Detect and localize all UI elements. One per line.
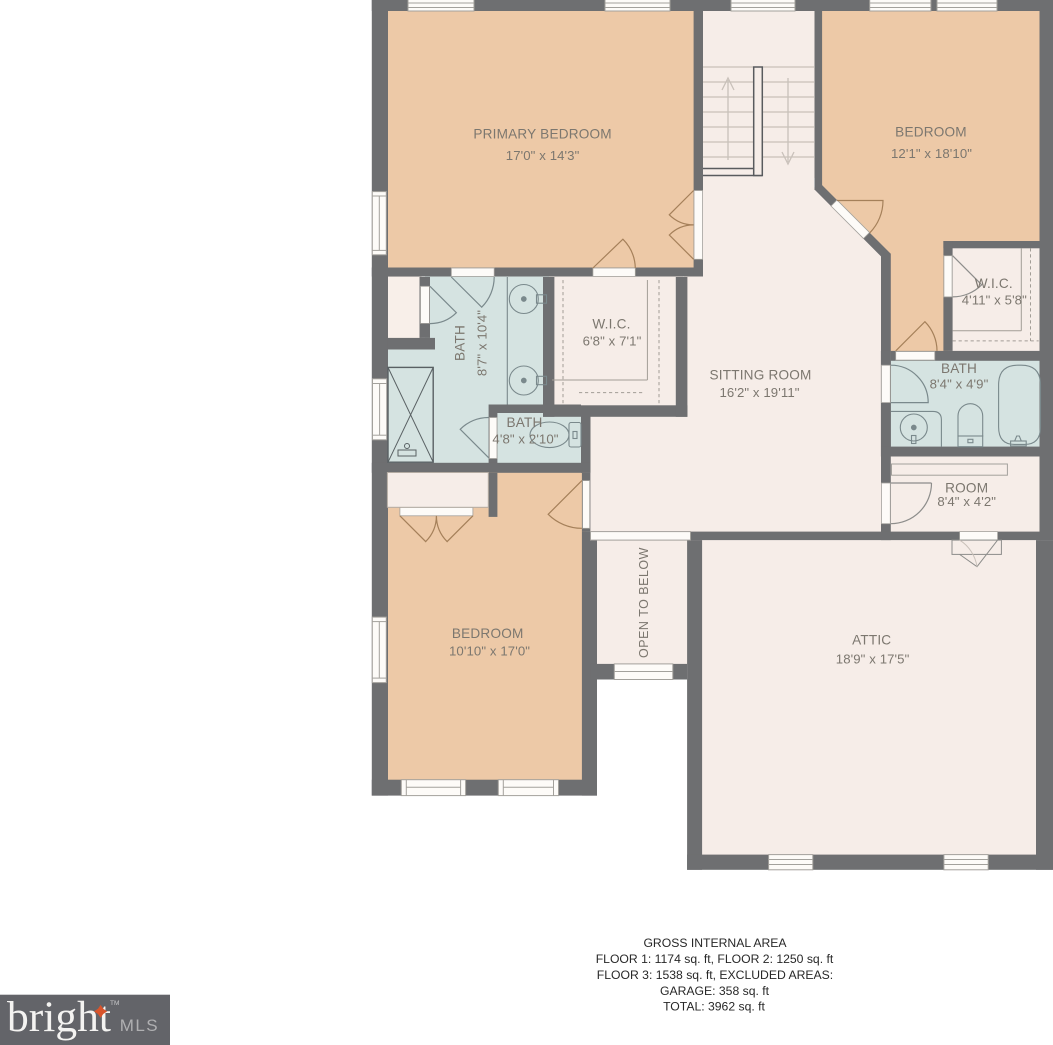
svg-text:SITTING ROOM: SITTING ROOM — [709, 368, 811, 383]
svg-text:OPEN TO BELOW: OPEN TO BELOW — [637, 547, 651, 658]
svg-text:GROSS INTERNAL AREA: GROSS INTERNAL AREA — [643, 936, 787, 950]
svg-text:BATH: BATH — [941, 361, 977, 376]
svg-text:GARAGE: 358 sq. ft: GARAGE: 358 sq. ft — [660, 984, 770, 998]
svg-text:W.I.C.: W.I.C. — [592, 317, 630, 332]
svg-text:18'9" x 17'5": 18'9" x 17'5" — [836, 652, 910, 667]
svg-text:ATTIC: ATTIC — [852, 633, 891, 648]
svg-text:BATH: BATH — [506, 415, 542, 430]
svg-text:12'1" x 18'10": 12'1" x 18'10" — [891, 146, 972, 161]
svg-text:MLS: MLS — [120, 1016, 159, 1035]
svg-text:6'8" x 7'1": 6'8" x 7'1" — [583, 334, 642, 349]
svg-text:TM: TM — [110, 1000, 119, 1007]
svg-text:10'10" x 17'0": 10'10" x 17'0" — [449, 644, 530, 659]
svg-text:8'4" x 4'9": 8'4" x 4'9" — [930, 377, 989, 392]
svg-text:4'11" x 5'8": 4'11" x 5'8" — [962, 293, 1027, 308]
svg-text:W.I.C.: W.I.C. — [975, 276, 1013, 291]
svg-text:FLOOR 3: 1538 sq. ft, EXCLUDED: FLOOR 3: 1538 sq. ft, EXCLUDED AREAS: — [597, 968, 833, 982]
svg-text:TOTAL: 3962 sq. ft: TOTAL: 3962 sq. ft — [663, 1000, 765, 1014]
svg-text:16'2" x 19'11": 16'2" x 19'11" — [719, 385, 799, 400]
svg-text:8'7" x 10'4": 8'7" x 10'4" — [475, 310, 490, 376]
svg-text:FLOOR 1: 1174 sq. ft, FLOOR 2:: FLOOR 1: 1174 sq. ft, FLOOR 2: 1250 sq. … — [596, 952, 834, 966]
svg-text:bright: bright — [7, 993, 111, 1041]
svg-text:BEDROOM: BEDROOM — [895, 125, 967, 140]
svg-text:PRIMARY BEDROOM: PRIMARY BEDROOM — [473, 127, 611, 142]
svg-text:BEDROOM: BEDROOM — [452, 626, 524, 641]
svg-text:17'0" x 14'3": 17'0" x 14'3" — [506, 148, 580, 163]
svg-text:4'8" x 2'10": 4'8" x 2'10" — [492, 432, 558, 447]
svg-text:8'4" x 4'2": 8'4" x 4'2" — [937, 494, 996, 509]
svg-text:BATH: BATH — [453, 325, 468, 361]
